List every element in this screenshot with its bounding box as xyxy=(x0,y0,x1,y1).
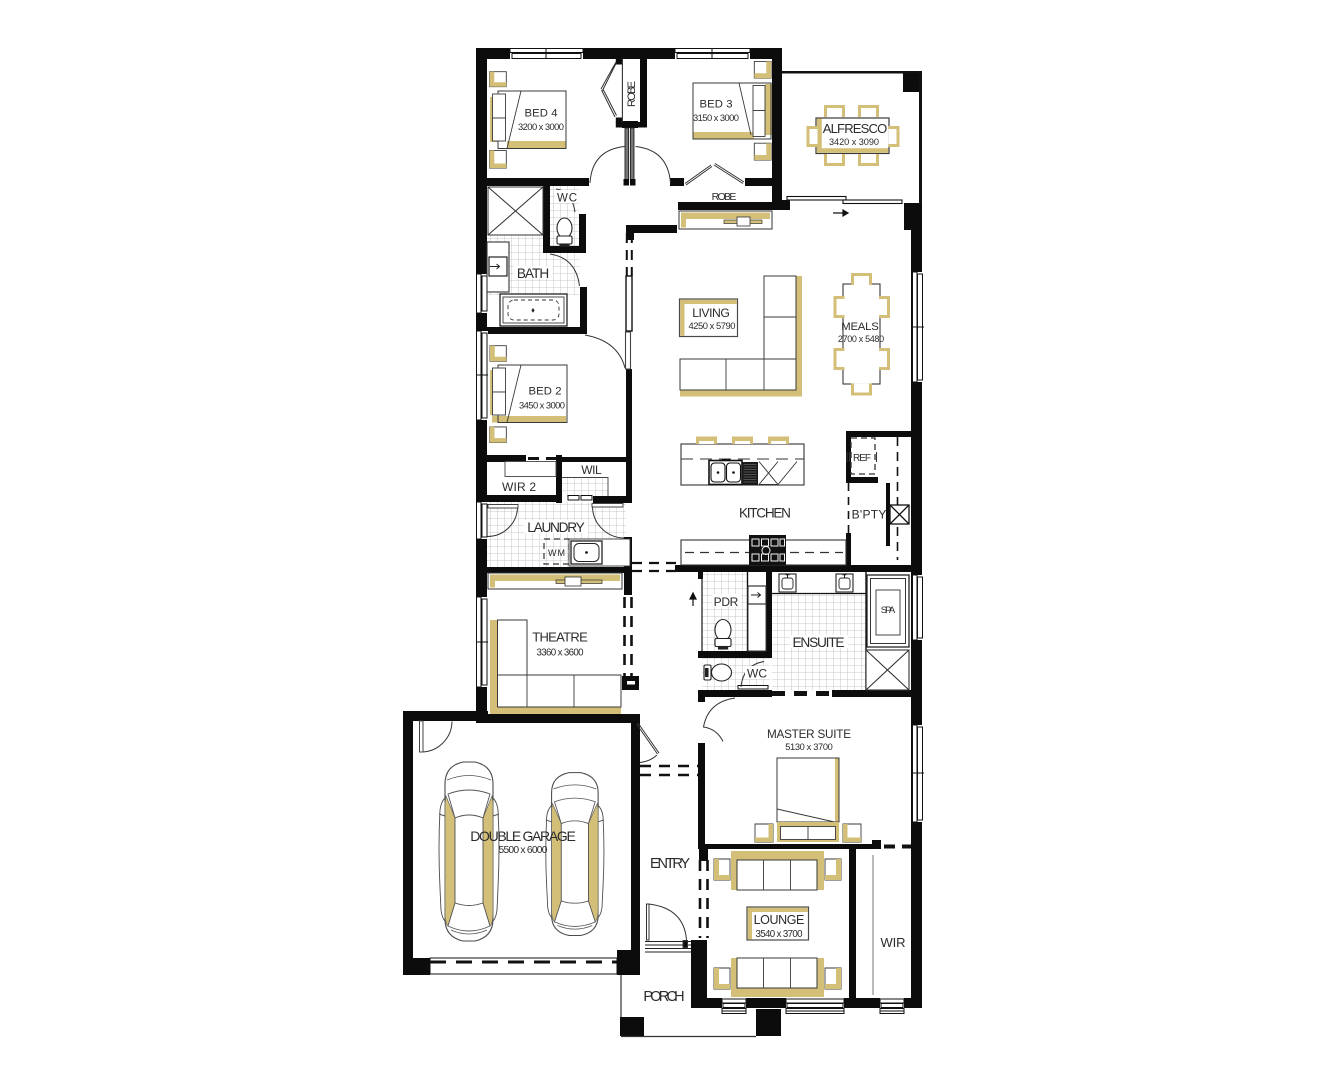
svg-text:WC: WC xyxy=(747,667,767,681)
svg-text:ROBE: ROBE xyxy=(626,81,638,107)
svg-text:2700 x 5480: 2700 x 5480 xyxy=(838,334,884,344)
svg-text:BATH: BATH xyxy=(517,266,549,281)
svg-text:WIR: WIR xyxy=(881,935,906,950)
svg-text:ENSUITE: ENSUITE xyxy=(793,635,845,650)
svg-text:DOUBLE GARAGE: DOUBLE GARAGE xyxy=(470,828,576,844)
svg-text:LAUNDRY: LAUNDRY xyxy=(527,520,585,535)
svg-text:WIL: WIL xyxy=(581,463,602,477)
svg-text:LIVING: LIVING xyxy=(692,306,730,320)
svg-text:WC: WC xyxy=(557,193,577,205)
svg-text:3540 x 3700: 3540 x 3700 xyxy=(756,929,804,940)
svg-text:PORCH: PORCH xyxy=(643,989,684,1005)
svg-text:BED 2: BED 2 xyxy=(529,386,562,398)
svg-text:4250 x 5790: 4250 x 5790 xyxy=(689,320,736,331)
svg-text:MEALS: MEALS xyxy=(841,321,879,333)
svg-text:REF: REF xyxy=(853,453,871,464)
svg-text:5500 x 6000: 5500 x 6000 xyxy=(499,845,548,856)
svg-text:5130 x 3700: 5130 x 3700 xyxy=(785,742,833,752)
svg-text:ALFRESCO: ALFRESCO xyxy=(823,121,888,136)
svg-text:PDR: PDR xyxy=(714,595,739,609)
svg-text:BED 4: BED 4 xyxy=(525,108,558,120)
svg-text:THEATRE: THEATRE xyxy=(532,630,588,645)
svg-text:MASTER SUITE: MASTER SUITE xyxy=(767,728,851,741)
svg-text:3200 x 3000: 3200 x 3000 xyxy=(518,121,564,132)
svg-text:3450 x 3000: 3450 x 3000 xyxy=(519,400,565,411)
svg-text:B'PTY: B'PTY xyxy=(852,508,887,522)
svg-text:3360 x 3600: 3360 x 3600 xyxy=(537,648,585,659)
svg-text:ROBE: ROBE xyxy=(712,191,737,203)
svg-text:KITCHEN: KITCHEN xyxy=(739,506,791,521)
svg-text:WIR 2: WIR 2 xyxy=(502,480,536,494)
svg-text:LOUNGE: LOUNGE xyxy=(754,913,805,927)
svg-text:3150 x 3000: 3150 x 3000 xyxy=(693,112,739,123)
svg-text:SPA: SPA xyxy=(881,605,896,616)
svg-text:3420 x 3090: 3420 x 3090 xyxy=(829,137,879,147)
svg-text:BED 3: BED 3 xyxy=(700,99,733,111)
svg-text:ENTRY: ENTRY xyxy=(650,856,690,872)
